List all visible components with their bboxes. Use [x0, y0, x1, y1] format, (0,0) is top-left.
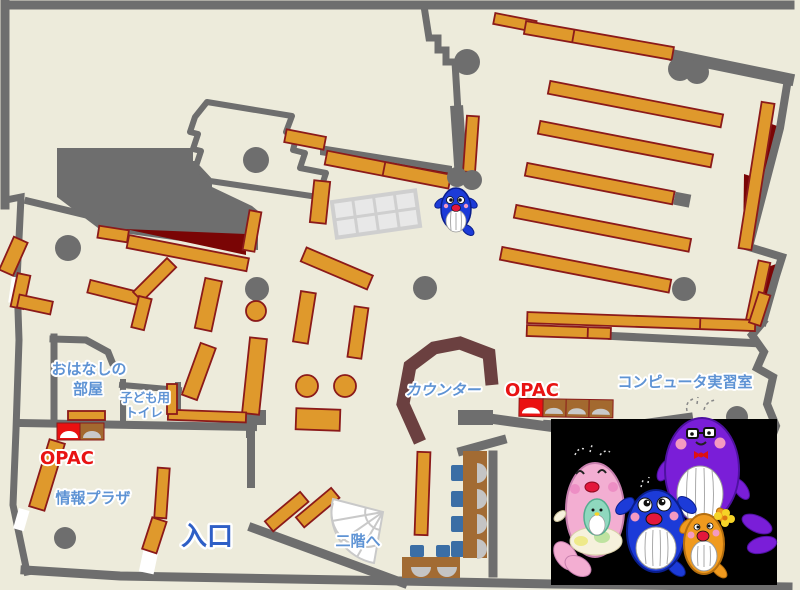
label-to-second-floor: 二階へ	[335, 532, 380, 550]
label-computer-room: コンピュータ実習室	[617, 373, 752, 391]
label-opac-right: OPAC	[505, 380, 559, 401]
floor-map-canvas: おはなしの 部屋 子ども用 トイレ OPAC 情報プラザ 入口 二階へ カウンタ…	[0, 0, 800, 590]
label-storytelling-room-2: 部屋	[73, 380, 103, 398]
library-floor-map: おはなしの 部屋 子ども用 トイレ OPAC 情報プラザ 入口 二階へ カウンタ…	[0, 0, 800, 590]
label-opac-left: OPAC	[40, 448, 94, 469]
label-kids-toilet-2: トイレ	[125, 405, 163, 420]
label-info-plaza: 情報プラザ	[55, 489, 130, 507]
whale-family-photo	[549, 397, 779, 585]
opac-station-left	[57, 423, 104, 440]
opac-station-right	[519, 398, 613, 418]
label-storytelling-room-1: おはなしの	[51, 360, 126, 378]
label-entrance: 入口	[181, 522, 233, 552]
label-counter: カウンター	[405, 381, 481, 399]
label-kids-toilet-1: 子ども用	[120, 390, 170, 405]
